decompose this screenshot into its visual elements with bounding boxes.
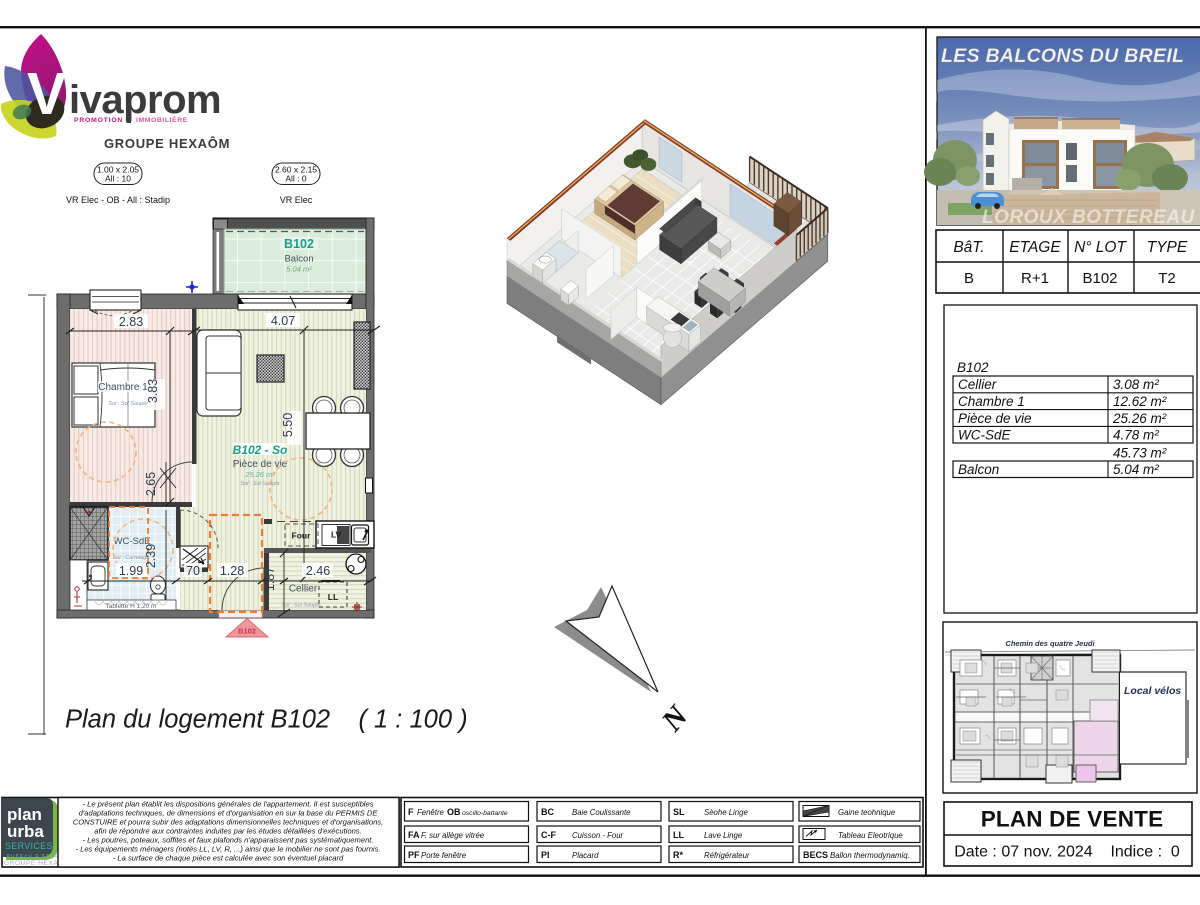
svg-text:Cuisson - Four: Cuisson - Four <box>572 831 624 840</box>
svg-text:12.62 m²: 12.62 m² <box>1113 394 1167 409</box>
svg-text:3.83: 3.83 <box>146 379 160 403</box>
svg-text:Balcon: Balcon <box>958 462 999 477</box>
svg-text:ETAGE: ETAGE <box>1009 239 1061 256</box>
svg-text:T2: T2 <box>1158 270 1176 287</box>
svg-text:Tableau Eleotrique: Tableau Eleotrique <box>838 831 903 840</box>
svg-text:WC-SdE: WC-SdE <box>958 428 1011 443</box>
svg-text:V: V <box>27 61 66 127</box>
svg-text:GROUPE HEXAÔM: GROUPE HEXAÔM <box>104 136 230 151</box>
svg-text:Placard: Placard <box>572 851 599 860</box>
svg-text:VR Elec - OB - All : Stadip: VR Elec - OB - All : Stadip <box>66 195 170 205</box>
svg-text:C-F: C-F <box>541 830 556 840</box>
svg-text:B102: B102 <box>238 627 256 636</box>
svg-text:Réfrigérateur: Réfrigérateur <box>704 851 750 860</box>
svg-text:Pièce de vie: Pièce de vie <box>958 411 1032 426</box>
svg-text:B102 - So: B102 - So <box>233 443 288 457</box>
svg-text:Pièce de vie: Pièce de vie <box>233 459 288 470</box>
svg-text:2.46: 2.46 <box>306 564 330 578</box>
svg-text:PF: PF <box>408 850 420 860</box>
svg-text:Sol : Sol Souple: Sol : Sol Souple <box>108 401 147 407</box>
svg-text:1.87: 1.87 <box>263 567 277 591</box>
svg-text:Date : 07 nov. 2024 Indice: Date : 07 nov. 2024 Indice : 0 <box>954 844 1180 861</box>
svg-text:Chambre 1: Chambre 1 <box>98 382 148 393</box>
svg-text:70: 70 <box>186 564 200 578</box>
svg-text:OB: OB <box>447 807 461 817</box>
svg-text:Fenêtre: Fenêtre <box>417 808 445 817</box>
svg-text:BECS: BECS <box>803 850 828 860</box>
svg-text:Balcon: Balcon <box>284 254 313 265</box>
svg-text:Tablette H 1,20 m: Tablette H 1,20 m <box>106 603 157 610</box>
svg-text:3.08 m²: 3.08 m² <box>1113 377 1159 392</box>
svg-text:Baie Coulissante: Baie Coulissante <box>572 808 631 817</box>
svg-text:Gaine teohnique: Gaine teohnique <box>838 808 896 817</box>
svg-text:- Les poutres, poteaux, soffit: - Les poutres, poteaux, soffites et faux… <box>82 836 373 845</box>
svg-text:F. sur allège vitrée: F. sur allège vitrée <box>421 831 485 840</box>
svg-text:ivaprom: ivaprom <box>69 78 221 122</box>
svg-text:LOROUX BOTTEREAU: LOROUX BOTTEREAU <box>982 207 1196 228</box>
svg-text:1.99: 1.99 <box>119 564 143 578</box>
svg-text:oscillo-battante: oscillo-battante <box>462 810 508 817</box>
svg-text:- Les équipements ménagers (no: - Les équipements ménagers (notés LL, LV… <box>75 845 380 854</box>
svg-text:45.73 m²: 45.73 m² <box>1113 446 1167 461</box>
svg-text:2.65: 2.65 <box>144 472 158 496</box>
svg-text:B102: B102 <box>957 360 989 375</box>
svg-text:LV: LV <box>331 530 342 540</box>
svg-text:Sol : Sol Souple: Sol : Sol Souple <box>240 481 279 487</box>
svg-text:d'adaptations techniques, de d: d'adaptations techniques, de dimensions … <box>79 809 379 818</box>
svg-text:BC: BC <box>541 807 554 817</box>
svg-text:F: F <box>408 807 414 817</box>
svg-text:PI: PI <box>541 850 550 860</box>
svg-text:All : 10: All : 10 <box>105 174 131 184</box>
svg-text:25.26 m²: 25.26 m² <box>1112 411 1167 426</box>
svg-text:5.04 m²: 5.04 m² <box>286 265 312 274</box>
svg-text:Chemin des quatre Jeudi: Chemin des quatre Jeudi <box>1005 639 1095 648</box>
svg-text:PROMOTION: PROMOTION <box>74 117 123 124</box>
svg-text:LL: LL <box>673 830 684 840</box>
svg-text:All : 0: All : 0 <box>285 174 307 184</box>
svg-text:FA: FA <box>408 830 420 840</box>
svg-text:B: B <box>964 270 974 287</box>
svg-text:2.83: 2.83 <box>119 315 143 329</box>
svg-text:urba: urba <box>7 822 44 841</box>
svg-text:Four: Four <box>292 531 312 541</box>
svg-text:2.39: 2.39 <box>144 544 158 568</box>
svg-text:Lave Linge: Lave Linge <box>704 831 743 840</box>
svg-text:N: N <box>655 699 696 739</box>
svg-text:SERVICES: SERVICES <box>5 841 53 851</box>
svg-text:25.26 m²: 25.26 m² <box>244 470 275 479</box>
svg-text:afin de répondre aux contraint: afin de répondre aux contraintes induite… <box>94 827 361 836</box>
svg-text:N° LOT: N° LOT <box>1074 239 1127 256</box>
svg-text:Cellier: Cellier <box>289 584 318 595</box>
svg-text:Cellier: Cellier <box>958 377 997 392</box>
svg-text:LES BALCONS DU BREIL: LES BALCONS DU BREIL <box>941 45 1184 67</box>
svg-text:CONSTUIRE et pourra subir des: CONSTUIRE et pourra subir des adaptation… <box>73 818 383 827</box>
svg-text:- Le présent plan établit les: - Le présent plan établit les dispositio… <box>82 800 373 809</box>
svg-text:SL: SL <box>673 807 685 817</box>
svg-text:4.07: 4.07 <box>271 314 295 328</box>
svg-text:B102: B102 <box>1082 270 1117 287</box>
svg-text:BâT.: BâT. <box>953 239 984 256</box>
svg-text:5.50: 5.50 <box>281 413 295 437</box>
svg-text:R+1: R+1 <box>1021 270 1049 287</box>
svg-text:Sèohe Linge: Sèohe Linge <box>704 808 748 817</box>
svg-text:- La surface de chaque pièce e: - La surface de chaque pièce est calculé… <box>113 854 344 863</box>
svg-text:Plan du logement B102 ( 1 :: Plan du logement B102 ( 1 : 100 ) <box>65 706 468 734</box>
svg-text:VR Elec: VR Elec <box>280 195 313 205</box>
svg-text:LL: LL <box>328 592 338 602</box>
svg-text:1.28: 1.28 <box>220 564 244 578</box>
svg-text:Sol : Sol Souple: Sol : Sol Souple <box>281 603 320 609</box>
svg-text:PLAN DE VENTE: PLAN DE VENTE <box>981 807 1164 832</box>
svg-text:Ballon thermodynamiq.: Ballon thermodynamiq. <box>830 851 910 860</box>
svg-text:Local vélos: Local vélos <box>1124 685 1181 697</box>
svg-text:Chambre 1: Chambre 1 <box>958 394 1025 409</box>
svg-text:5.04 m²: 5.04 m² <box>1113 462 1159 477</box>
svg-text:4.78 m²: 4.78 m² <box>1113 428 1159 443</box>
svg-text:R*: R* <box>673 850 683 860</box>
svg-text:B102: B102 <box>284 237 314 251</box>
svg-text:TYPE: TYPE <box>1147 239 1188 256</box>
svg-text:IMMOBILIÈRE: IMMOBILIÈRE <box>136 115 188 124</box>
svg-text:Porte fenêtre: Porte fenêtre <box>421 851 467 860</box>
